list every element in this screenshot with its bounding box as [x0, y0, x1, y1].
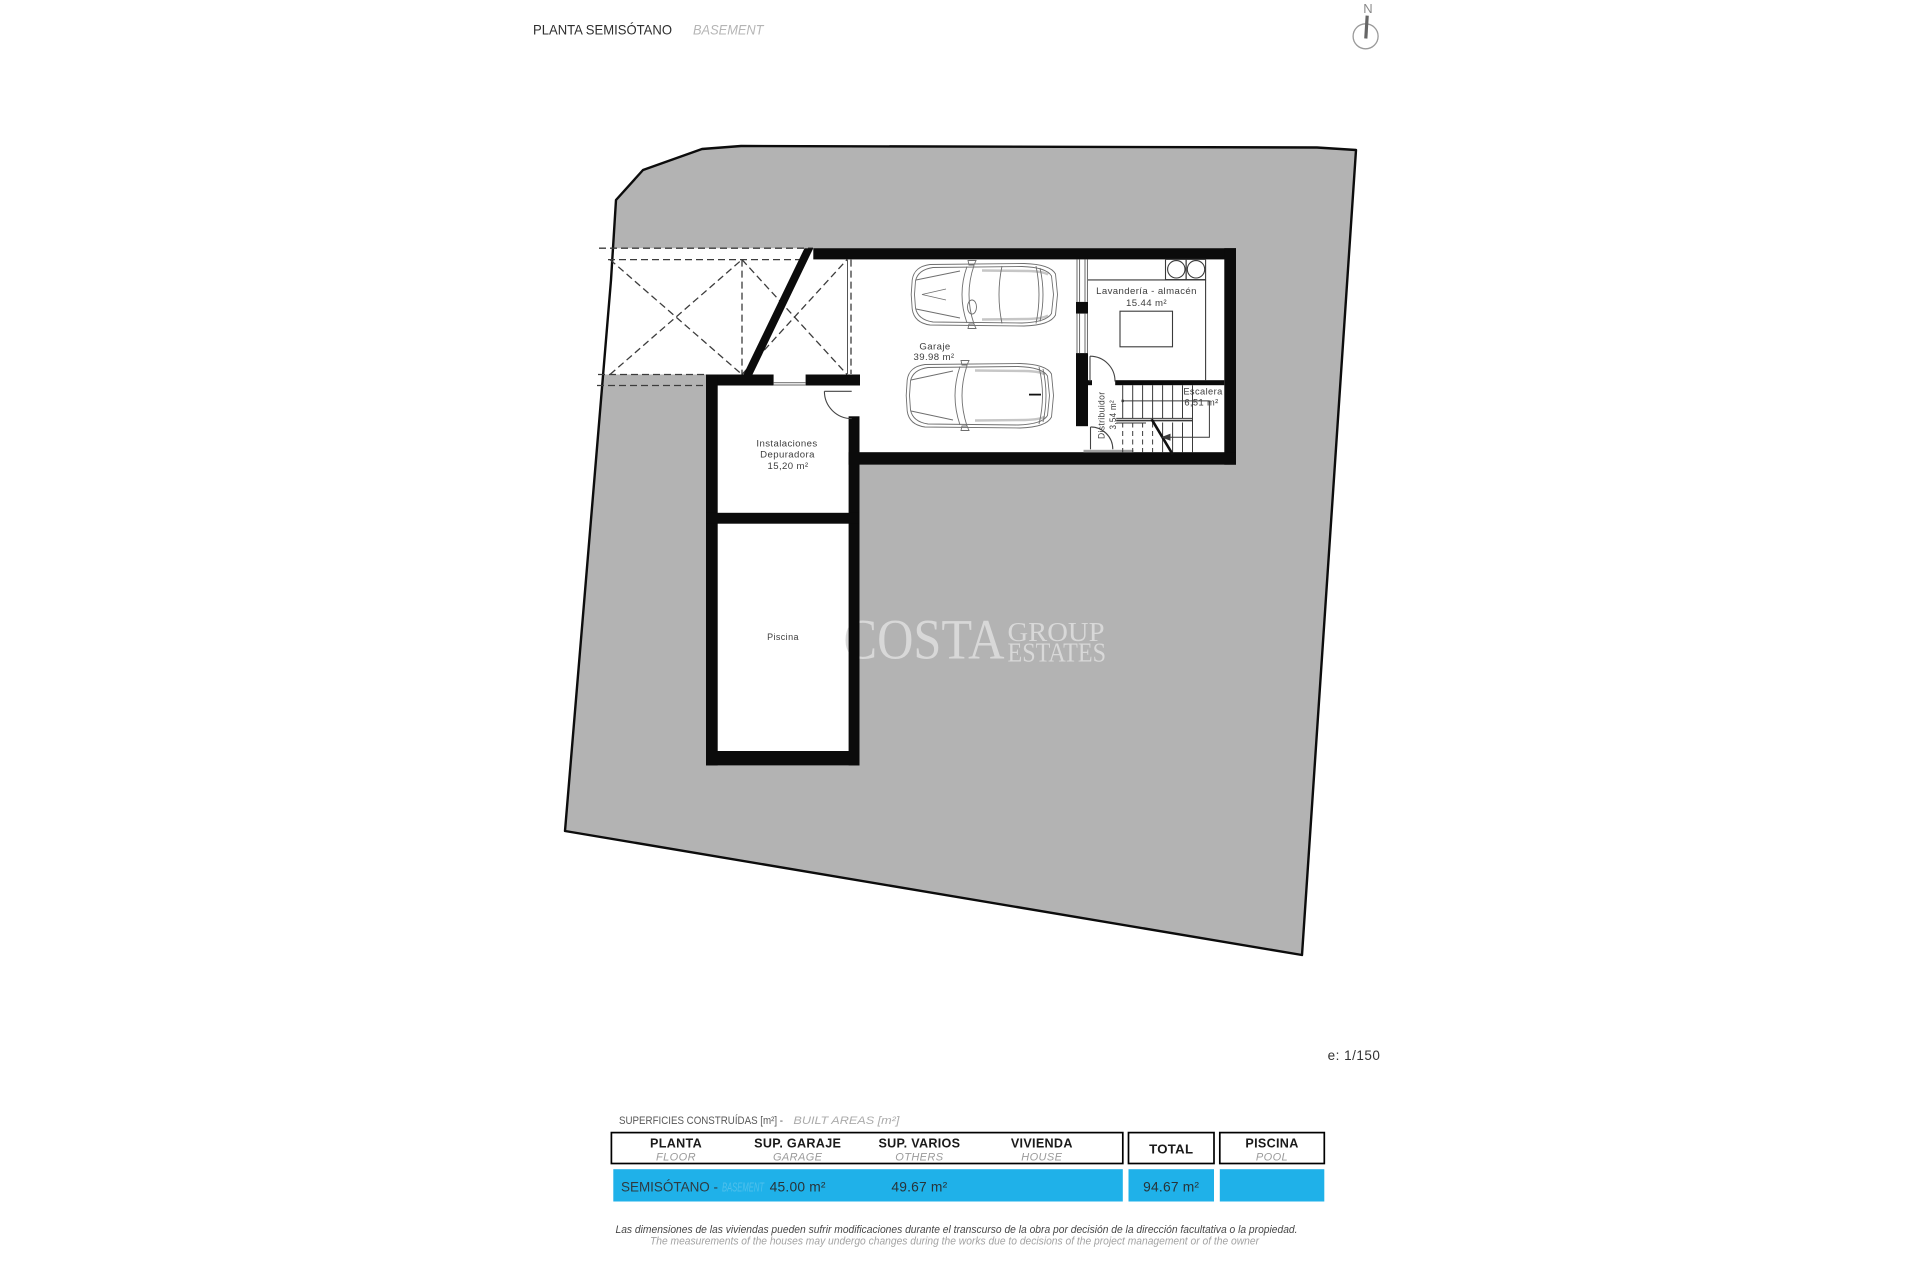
svg-text:39.98 m²: 39.98 m²	[913, 352, 954, 363]
svg-text:Lavandería - almacén: Lavandería - almacén	[1096, 286, 1197, 297]
svg-text:15.44 m²: 15.44 m²	[1126, 298, 1167, 309]
svg-text:TOTAL: TOTAL	[1149, 1141, 1193, 1156]
svg-text:PLANTA SEMISÓTANO: PLANTA SEMISÓTANO	[533, 22, 672, 38]
svg-text:SUP. GARAJE: SUP. GARAJE	[754, 1136, 841, 1150]
svg-text:HOUSE: HOUSE	[1021, 1151, 1062, 1163]
svg-text:N: N	[1363, 1, 1372, 16]
svg-text:94.67 m²: 94.67 m²	[1143, 1180, 1199, 1195]
svg-text:GARAGE: GARAGE	[773, 1151, 823, 1163]
svg-text:The measurements of the houses: The measurements of the houses may under…	[650, 1236, 1259, 1248]
svg-text:Las dimensiones de las viviend: Las dimensiones de las viviendas pueden …	[616, 1224, 1298, 1236]
svg-text:Depuradora: Depuradora	[760, 450, 815, 461]
svg-text:BASEMENT: BASEMENT	[693, 23, 764, 38]
svg-text:ESTATES: ESTATES	[1008, 638, 1107, 668]
svg-text:COSTA: COSTA	[844, 609, 1005, 672]
svg-text:SUPERFICIES CONSTRUÍDAS [m²] -: SUPERFICIES CONSTRUÍDAS [m²] -	[619, 1114, 783, 1127]
svg-text:BASEMENT: BASEMENT	[722, 1181, 765, 1195]
svg-text:POOL: POOL	[1256, 1151, 1288, 1163]
svg-text:FLOOR: FLOOR	[656, 1151, 696, 1163]
svg-text:VIVIENDA: VIVIENDA	[1011, 1136, 1073, 1150]
svg-text:15,20 m²: 15,20 m²	[767, 461, 808, 472]
svg-text:PISCINA: PISCINA	[1245, 1136, 1298, 1150]
svg-text:3,54 m²: 3,54 m²	[1108, 400, 1118, 430]
svg-text:Piscina: Piscina	[767, 632, 799, 642]
svg-text:Escalera: Escalera	[1183, 387, 1223, 397]
svg-text:BUILT AREAS [m²]: BUILT AREAS [m²]	[793, 1115, 900, 1127]
svg-text:45.00 m²: 45.00 m²	[770, 1180, 826, 1195]
svg-text:49.67 m²: 49.67 m²	[891, 1180, 947, 1195]
svg-text:e: 1/150: e: 1/150	[1328, 1048, 1381, 1063]
svg-text:6,51 m²: 6,51 m²	[1184, 398, 1218, 408]
svg-text:Distribuidor: Distribuidor	[1097, 392, 1107, 440]
svg-text:PLANTA: PLANTA	[650, 1136, 702, 1150]
svg-text:OTHERS: OTHERS	[895, 1151, 944, 1163]
svg-text:SEMISÓTANO -: SEMISÓTANO -	[621, 1179, 718, 1195]
svg-text:Instalaciones: Instalaciones	[756, 439, 817, 450]
svg-text:SUP. VARIOS: SUP. VARIOS	[878, 1136, 960, 1150]
svg-text:Garaje: Garaje	[919, 342, 950, 353]
